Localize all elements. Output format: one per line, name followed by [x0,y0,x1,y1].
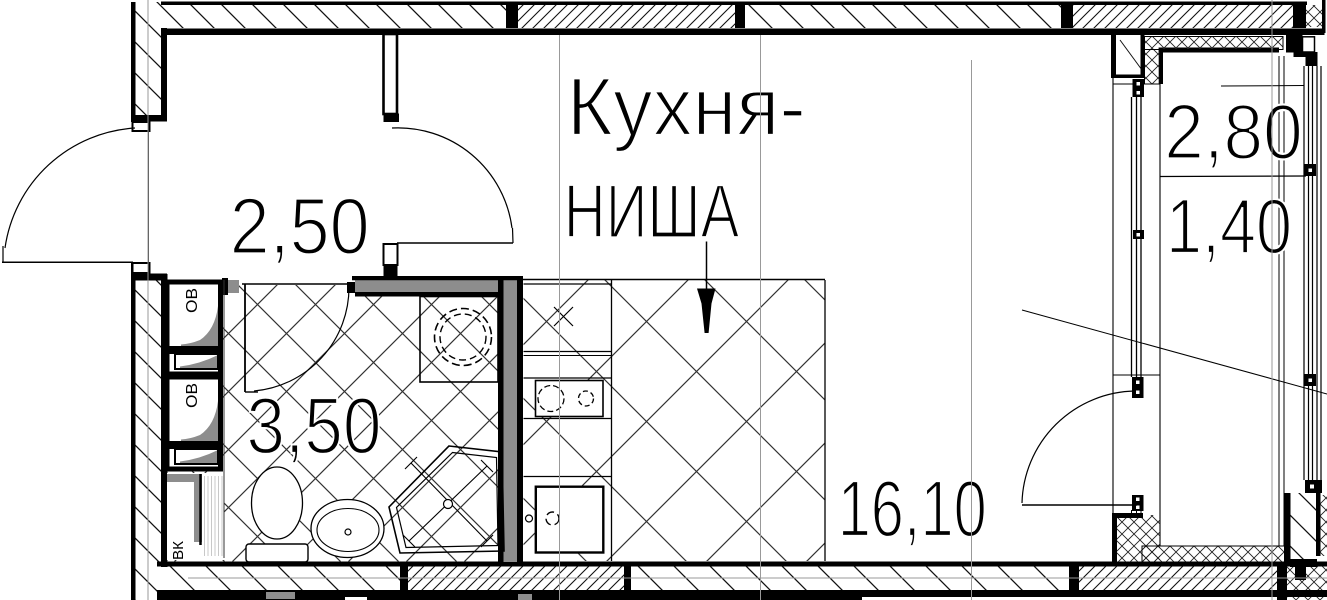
svg-text:Кухня-: Кухня- [567,60,806,153]
svg-text:ОВ: ОВ [184,288,201,313]
svg-text:2,50: 2,50 [230,182,370,271]
svg-text:16,10: 16,10 [838,464,987,553]
svg-text:НИША: НИША [564,170,740,255]
svg-text:1,40: 1,40 [1166,182,1292,270]
svg-text:ВК: ВК [170,541,187,560]
svg-text:3,50: 3,50 [246,381,381,470]
svg-text:2,80: 2,80 [1164,88,1302,176]
svg-text:ОВ: ОВ [184,383,201,408]
